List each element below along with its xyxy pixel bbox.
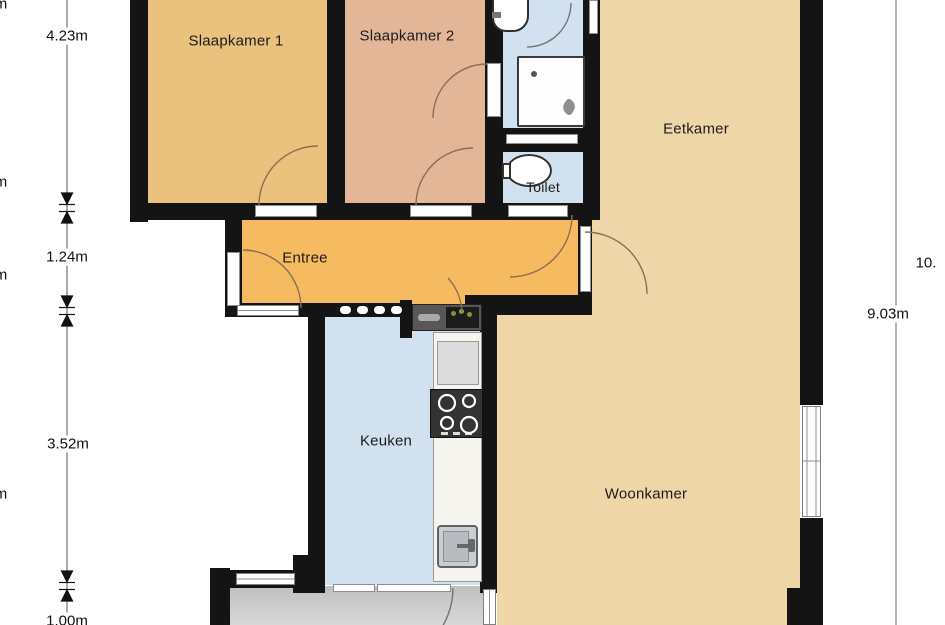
dim-1-00m: 1.00m (43, 613, 91, 625)
window-balkon-top (236, 573, 295, 585)
appliance-handle (418, 314, 440, 321)
door-top-edge (589, 0, 598, 34)
dash (357, 306, 368, 314)
wall (308, 315, 325, 593)
door-toilet (508, 205, 568, 217)
plant-dot (459, 309, 464, 314)
pass-hatch-badkamer (506, 134, 578, 144)
plant-dot (467, 312, 472, 317)
wall (465, 295, 592, 315)
washbasin (492, 0, 529, 32)
label-toilet: Toilet (526, 179, 560, 195)
label-slaapkamer2: Slaapkamer 2 (360, 28, 455, 45)
label-keuken: Keuken (360, 433, 412, 450)
label-eetkamer: Eetkamer (663, 121, 729, 138)
kitchen-sink (437, 525, 478, 568)
dim-edge-partial-m: m (0, 267, 7, 284)
dim-1-24m: 1.24m (43, 249, 91, 266)
faucet-icon (468, 539, 475, 552)
label-woonkamer: Woonkamer (605, 486, 687, 503)
refrigerator (437, 341, 479, 385)
door-entree-woonkamer (580, 226, 591, 292)
faucet-spout (457, 544, 469, 548)
floorplan: Slaapkamer 1 Slaapkamer 2 Eetkamer Toile… (0, 0, 945, 625)
dim-edge-partial-m: m (0, 0, 7, 13)
stove-control (453, 432, 460, 435)
wall (210, 568, 230, 625)
door-slaapkamer1 (255, 205, 317, 217)
label-slaapkamer1: Slaapkamer 1 (189, 33, 284, 50)
window-balkon-woonkamer (483, 589, 496, 625)
stove-control (441, 432, 448, 435)
wall (327, 0, 345, 205)
dim-edge-partial-m: m (0, 174, 7, 191)
door-keuken-balkon-b (377, 584, 451, 592)
stove-control (465, 432, 472, 435)
shower-tray (517, 56, 585, 127)
wall (787, 588, 823, 625)
window-woonkamer-right (802, 406, 821, 517)
dim-4-23m: 4.23m (43, 28, 91, 45)
dim-10-partial: 10. (913, 255, 940, 272)
wall (130, 0, 148, 222)
wall (800, 518, 823, 588)
toilet-tank (502, 163, 511, 179)
dash (391, 306, 402, 314)
dash (374, 306, 385, 314)
wall (480, 313, 497, 593)
label-entree: Entree (282, 250, 327, 267)
shower-head-icon (560, 98, 578, 116)
wall (800, 0, 823, 405)
dim-9-03m: 9.03m (864, 306, 912, 323)
dim-3-52m: 3.52m (44, 436, 92, 453)
window-entree-void (237, 305, 299, 316)
open-passage-dashes (340, 306, 402, 314)
basin-faucet (492, 12, 501, 18)
door-keuken-balkon-a (333, 584, 375, 592)
plant-dot (451, 311, 456, 316)
door-slaapkamer2 (410, 205, 472, 217)
stove (430, 389, 483, 438)
dim-edge-partial-m: m (0, 486, 7, 503)
counter-appliance (412, 304, 482, 331)
dash (340, 306, 351, 314)
door-shower-room (487, 63, 501, 117)
shower-drain (531, 71, 537, 77)
room-slaapkamer1 (148, 0, 327, 205)
door-entrance (227, 252, 240, 306)
